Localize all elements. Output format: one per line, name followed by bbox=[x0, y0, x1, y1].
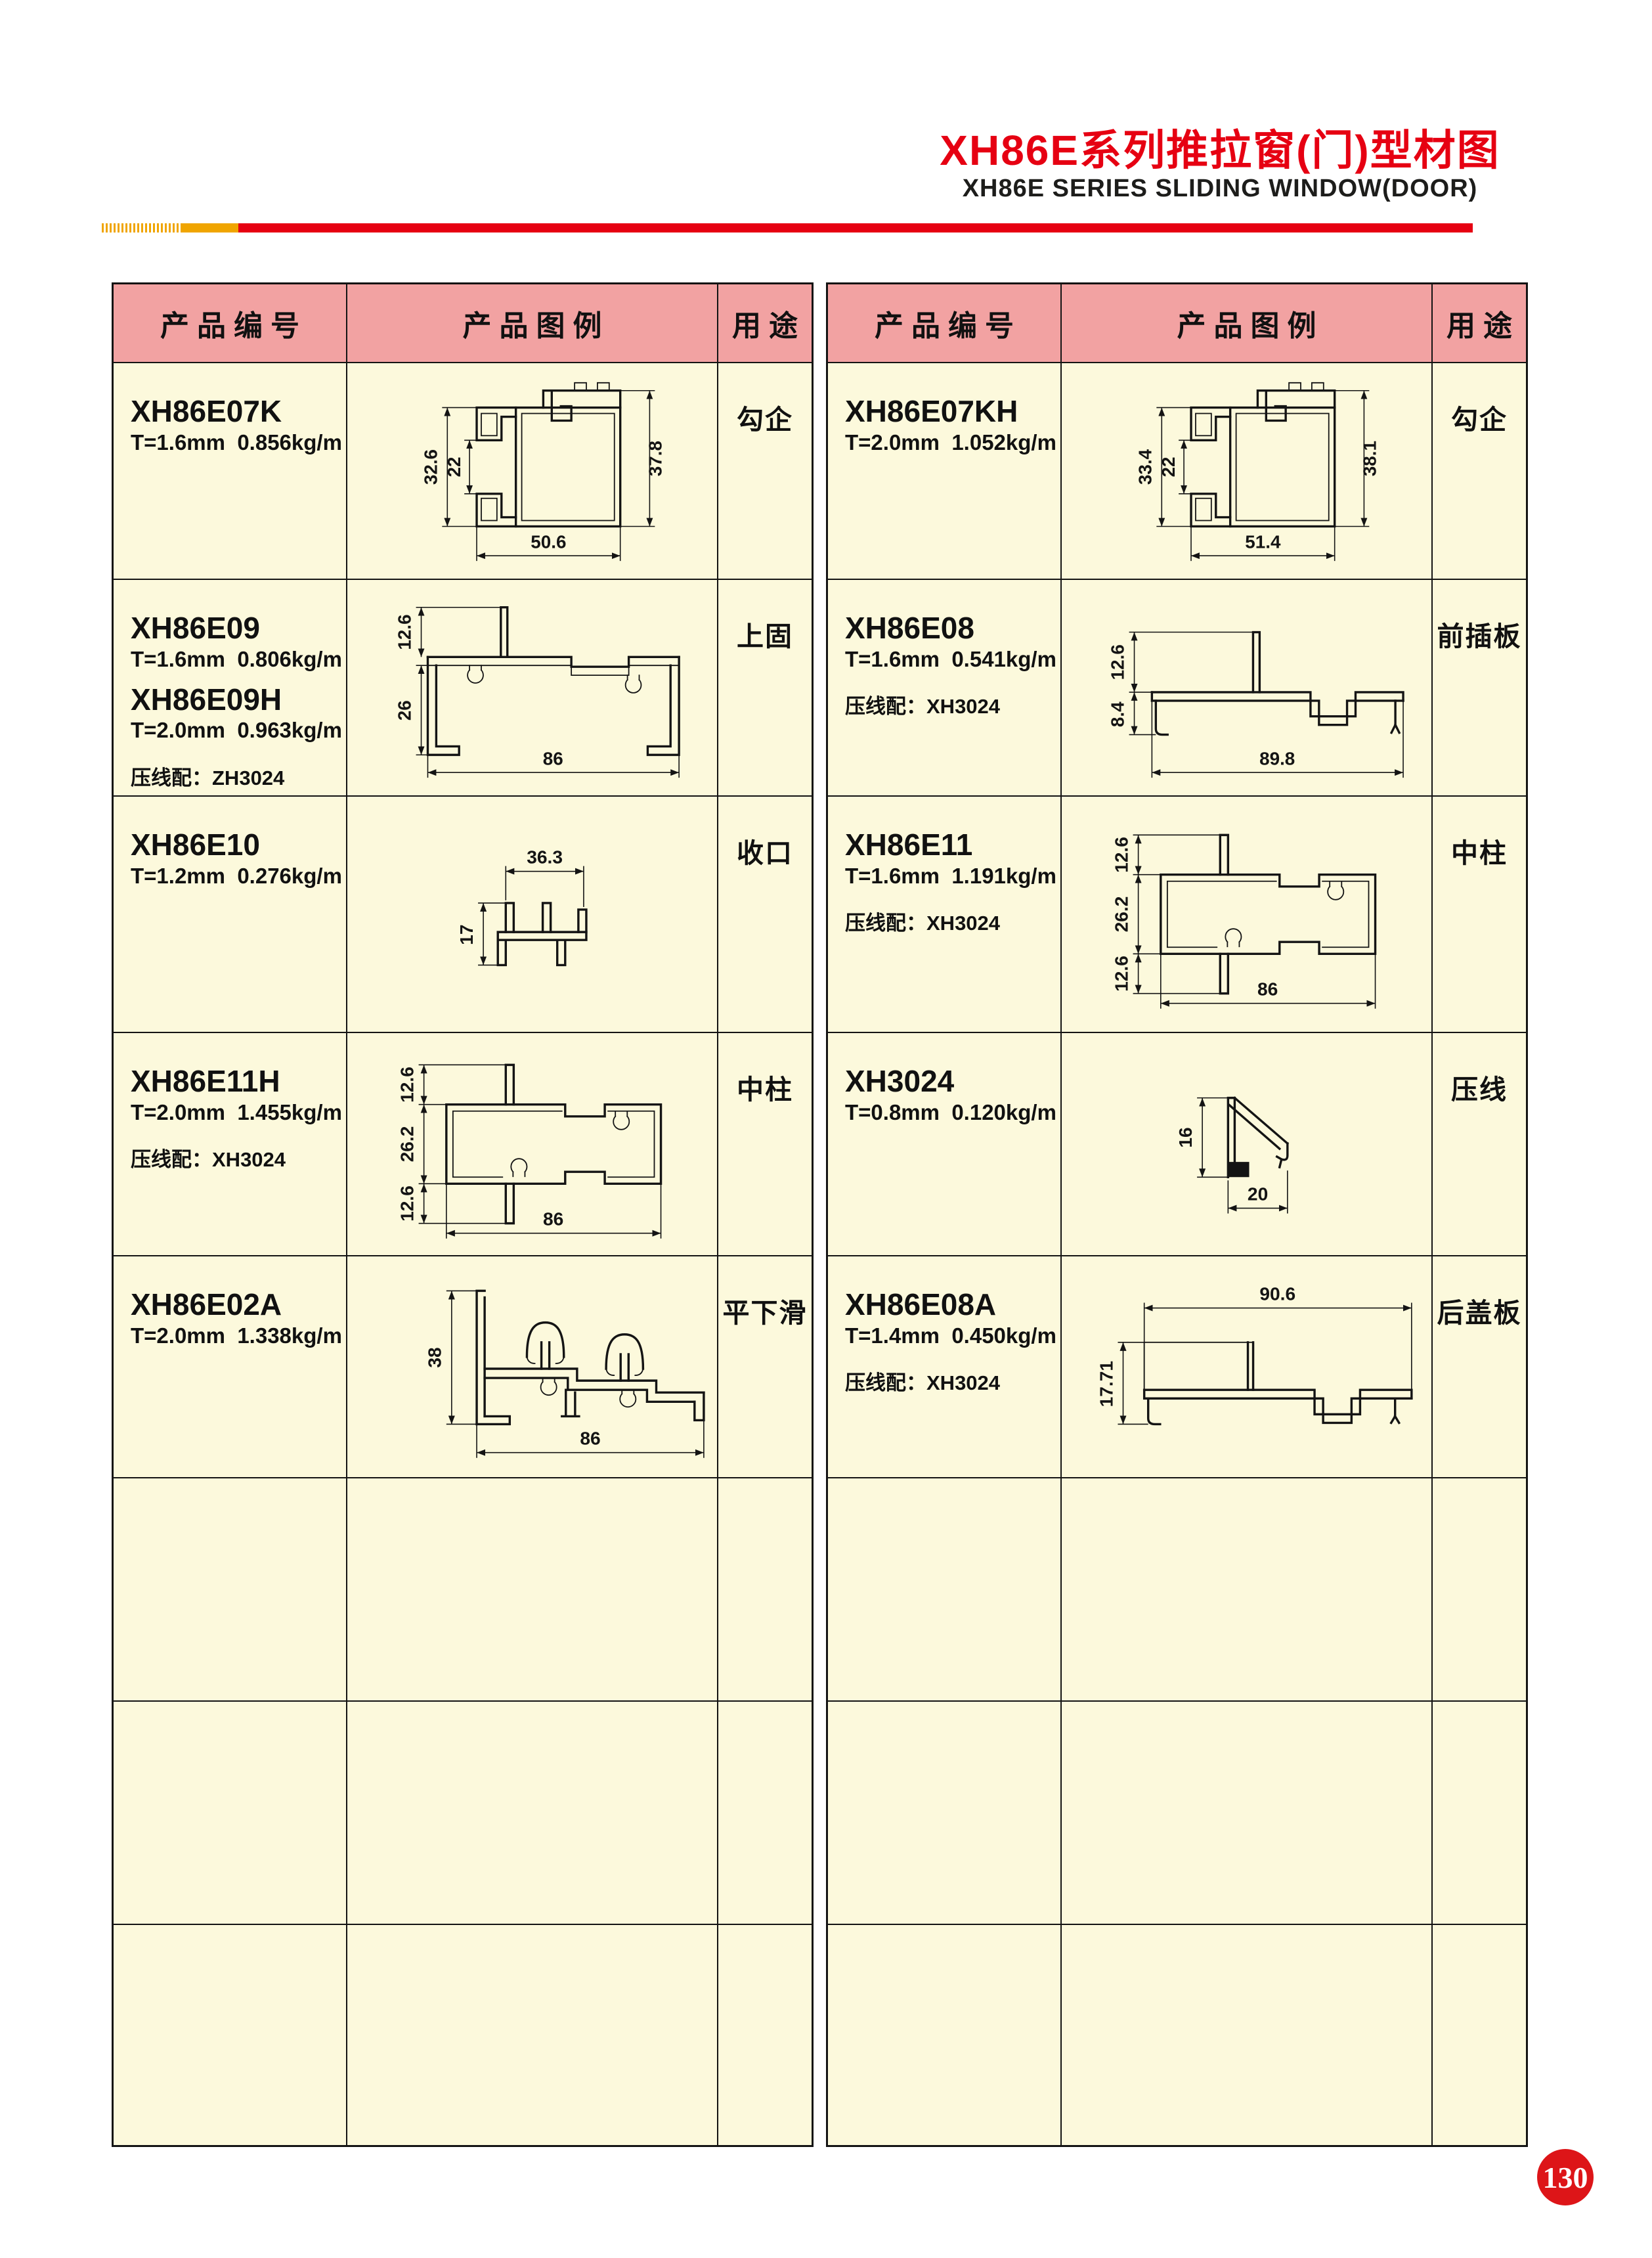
usage-label: 收口 bbox=[737, 838, 793, 868]
usage-label: 中柱 bbox=[1451, 838, 1508, 868]
front-insert-plate-profile-drawing: 12.6 8.4 89.8 bbox=[1062, 580, 1431, 795]
product-code-cell: XH86E07K T=1.6mm 0.856kg/m bbox=[114, 363, 347, 580]
glazing-bead-profile-drawing: 16 20 bbox=[1062, 1033, 1431, 1255]
dim-label: 12.6 bbox=[397, 1067, 418, 1103]
usage-cell: 勾企 bbox=[718, 363, 812, 580]
bead-match-note: 压线配：XH3024 bbox=[845, 1366, 1051, 1396]
product-code: XH3024 bbox=[845, 1065, 1051, 1099]
col-header-illustration: 产品图例 bbox=[347, 284, 718, 363]
decor-red-bar bbox=[238, 223, 1473, 232]
product-code-cell: XH86E08 T=1.6mm 0.541kg/m 压线配：XH3024 bbox=[828, 580, 1062, 797]
bead-match-note: 压线配：XH3024 bbox=[845, 690, 1051, 719]
product-illustration-cell: 90.6 17.71 bbox=[1062, 1256, 1433, 1478]
dim-label: 89.8 bbox=[1259, 748, 1295, 768]
product-code: XH86E11 bbox=[845, 828, 1051, 862]
back-cover-plate-profile-drawing: 90.6 17.71 bbox=[1062, 1256, 1431, 1477]
dim-label: 26.2 bbox=[1112, 897, 1132, 933]
product-code: XH86E09 bbox=[131, 611, 337, 646]
top-fixed-profile-drawing: 12.6 26 86 bbox=[347, 580, 717, 795]
usage-cell: 收口 bbox=[718, 797, 812, 1033]
dim-label: 17.71 bbox=[1096, 1361, 1116, 1407]
dim-label: 12.6 bbox=[1112, 956, 1132, 992]
center-mullion-profile-drawing: 12.6 26.2 12.6 86 bbox=[347, 1033, 717, 1255]
product-code: XH86E11H bbox=[131, 1065, 337, 1099]
dim-label: 32.6 bbox=[420, 449, 441, 485]
product-spec: T=2.0mm 1.052kg/m bbox=[845, 429, 1051, 456]
product-code: XH86E10 bbox=[131, 828, 337, 862]
product-illustration-cell: 12.6 26 86 bbox=[347, 580, 718, 797]
dim-label: 86 bbox=[543, 1209, 563, 1229]
usage-label: 平下滑 bbox=[723, 1298, 808, 1328]
dim-label: 38 bbox=[425, 1347, 445, 1367]
usage-cell: 中柱 bbox=[718, 1033, 812, 1256]
dim-label: 38.1 bbox=[1359, 441, 1380, 476]
product-illustration-cell: 36.3 17 bbox=[347, 797, 718, 1033]
decor-stripe-bar bbox=[102, 223, 181, 232]
product-code-cell: XH86E02A T=2.0mm 1.338kg/m bbox=[114, 1256, 347, 1478]
profile-table-left: 产品编号 产品图例 用途 XH86E07K T=1.6mm 0.856kg/m … bbox=[112, 282, 814, 2147]
empty-cell bbox=[1433, 1478, 1526, 1702]
dim-label: 16 bbox=[1175, 1127, 1196, 1147]
usage-label: 勾企 bbox=[1451, 405, 1508, 435]
decor-yellow-bar bbox=[181, 223, 238, 232]
product-code: XH86E08 bbox=[845, 611, 1051, 646]
col-header-illustration: 产品图例 bbox=[1062, 284, 1433, 363]
product-code-cell: XH86E09 T=1.6mm 0.806kg/m XH86E09H T=2.0… bbox=[114, 580, 347, 797]
dim-label: 90.6 bbox=[1259, 1283, 1295, 1304]
page-number: 130 bbox=[1543, 2160, 1588, 2195]
col-header-code: 产品编号 bbox=[114, 284, 347, 363]
product-spec: T=1.6mm 0.806kg/m bbox=[131, 646, 337, 673]
empty-cell bbox=[718, 1478, 812, 1702]
dim-label: 86 bbox=[580, 1428, 600, 1449]
empty-cell bbox=[1062, 1925, 1433, 2145]
product-code-cell: XH86E11 T=1.6mm 1.191kg/m 压线配：XH3024 bbox=[828, 797, 1062, 1033]
product-spec: T=1.4mm 0.450kg/m bbox=[845, 1322, 1051, 1349]
dim-label: 51.4 bbox=[1245, 531, 1281, 552]
empty-cell bbox=[828, 1702, 1062, 1925]
product-illustration-cell: 16 20 bbox=[1062, 1033, 1433, 1256]
dim-label: 20 bbox=[1248, 1184, 1268, 1204]
product-code-cell: XH86E10 T=1.2mm 0.276kg/m bbox=[114, 797, 347, 1033]
product-spec: T=1.6mm 0.541kg/m bbox=[845, 646, 1051, 673]
page-number-badge: 130 bbox=[1537, 2149, 1594, 2205]
usage-label: 后盖板 bbox=[1437, 1298, 1522, 1328]
product-illustration-cell: 12.6 8.4 89.8 bbox=[1062, 580, 1433, 797]
product-code: XH86E07KH bbox=[845, 395, 1051, 429]
empty-cell bbox=[828, 1478, 1062, 1702]
usage-cell: 平下滑 bbox=[718, 1256, 812, 1478]
bead-match-note: 压线配：XH3024 bbox=[131, 1143, 337, 1172]
dim-label: 22 bbox=[1158, 457, 1179, 477]
empty-cell bbox=[1062, 1702, 1433, 1925]
usage-label: 上固 bbox=[737, 621, 793, 652]
product-code: XH86E02A bbox=[131, 1288, 337, 1322]
col-header-usage: 用途 bbox=[718, 284, 812, 363]
hook-lock-profile-drawing: 32.6 22 37.8 50.6 bbox=[347, 363, 717, 579]
dim-label: 12.6 bbox=[397, 1185, 418, 1222]
product-illustration-cell: 33.4 22 38.1 51.4 bbox=[1062, 363, 1433, 580]
dim-label: 12.6 bbox=[1108, 644, 1128, 680]
product-code-cell: XH3024 T=0.8mm 0.120kg/m bbox=[828, 1033, 1062, 1256]
profile-table-right: 产品编号 产品图例 用途 XH86E07KH T=2.0mm 1.052kg/m… bbox=[826, 282, 1528, 2147]
empty-cell bbox=[347, 1702, 718, 1925]
empty-cell bbox=[114, 1702, 347, 1925]
product-illustration-cell: 32.6 22 37.8 50.6 bbox=[347, 363, 718, 580]
dim-label: 37.8 bbox=[645, 441, 665, 476]
product-spec: T=1.2mm 0.276kg/m bbox=[131, 862, 337, 889]
empty-cell bbox=[114, 1478, 347, 1702]
empty-cell bbox=[114, 1925, 347, 2145]
usage-cell: 压线 bbox=[1433, 1033, 1526, 1256]
bottom-slide-profile-drawing: 38 86 bbox=[347, 1256, 717, 1477]
dim-label: 26.2 bbox=[397, 1126, 418, 1162]
closing-profile-drawing: 36.3 17 bbox=[347, 797, 717, 1032]
product-illustration-cell: 38 86 bbox=[347, 1256, 718, 1478]
bead-match-note: 压线配：XH3024 bbox=[845, 906, 1051, 936]
page-title-en: XH86E SERIES SLIDING WINDOW(DOOR) bbox=[906, 175, 1534, 203]
dim-label: 12.6 bbox=[395, 614, 415, 650]
product-code: XH86E09H bbox=[131, 683, 337, 717]
empty-cell bbox=[1433, 1925, 1526, 2145]
usage-label: 压线 bbox=[1451, 1074, 1508, 1105]
col-header-code: 产品编号 bbox=[828, 284, 1062, 363]
empty-cell bbox=[718, 1702, 812, 1925]
empty-cell bbox=[1062, 1478, 1433, 1702]
empty-cell bbox=[718, 1925, 812, 2145]
dim-label: 17 bbox=[456, 925, 477, 945]
product-code-cell: XH86E11H T=2.0mm 1.455kg/m 压线配：XH3024 bbox=[114, 1033, 347, 1256]
product-spec: T=2.0mm 1.338kg/m bbox=[131, 1322, 337, 1349]
product-code: XH86E08A bbox=[845, 1288, 1051, 1322]
usage-cell: 前插板 bbox=[1433, 580, 1526, 797]
product-code-cell: XH86E08A T=1.4mm 0.450kg/m 压线配：XH3024 bbox=[828, 1256, 1062, 1478]
empty-cell bbox=[828, 1925, 1062, 2145]
usage-cell: 中柱 bbox=[1433, 797, 1526, 1033]
bead-match-note: 压线配：ZH3024 bbox=[131, 761, 337, 791]
product-spec: T=0.8mm 0.120kg/m bbox=[845, 1099, 1051, 1126]
usage-label: 勾企 bbox=[737, 405, 793, 435]
dim-label: 33.4 bbox=[1135, 449, 1155, 485]
empty-cell bbox=[347, 1925, 718, 2145]
product-illustration-cell: 12.6 26.2 12.6 86 bbox=[347, 1033, 718, 1256]
usage-cell: 后盖板 bbox=[1433, 1256, 1526, 1478]
page-title-cn: XH86E系列推拉窗(门)型材图 bbox=[906, 117, 1534, 177]
dim-label: 12.6 bbox=[1112, 837, 1132, 873]
center-mullion-profile-drawing: 12.6 26.2 12.6 86 bbox=[1062, 797, 1431, 1032]
empty-cell bbox=[347, 1478, 718, 1702]
usage-label: 中柱 bbox=[737, 1074, 793, 1105]
product-spec: T=2.0mm 0.963kg/m bbox=[131, 717, 337, 743]
product-spec: T=1.6mm 0.856kg/m bbox=[131, 429, 337, 456]
hook-lock-profile-drawing: 33.4 22 38.1 51.4 bbox=[1062, 363, 1431, 579]
dim-label: 8.4 bbox=[1108, 701, 1128, 727]
product-code: XH86E07K bbox=[131, 395, 337, 429]
product-code-cell: XH86E07KH T=2.0mm 1.052kg/m bbox=[828, 363, 1062, 580]
usage-label: 前插板 bbox=[1437, 621, 1522, 652]
dim-label: 50.6 bbox=[531, 531, 566, 552]
dim-label: 22 bbox=[444, 457, 464, 477]
dim-label: 86 bbox=[543, 748, 563, 768]
col-header-usage: 用途 bbox=[1433, 284, 1526, 363]
usage-cell: 上固 bbox=[718, 580, 812, 797]
dim-label: 26 bbox=[395, 700, 415, 720]
product-illustration-cell: 12.6 26.2 12.6 86 bbox=[1062, 797, 1433, 1033]
dim-label: 36.3 bbox=[527, 847, 563, 868]
product-spec: T=1.6mm 1.191kg/m bbox=[845, 862, 1051, 889]
usage-cell: 勾企 bbox=[1433, 363, 1526, 580]
empty-cell bbox=[1433, 1702, 1526, 1925]
dim-label: 86 bbox=[1257, 979, 1278, 1000]
product-spec: T=2.0mm 1.455kg/m bbox=[131, 1099, 337, 1126]
